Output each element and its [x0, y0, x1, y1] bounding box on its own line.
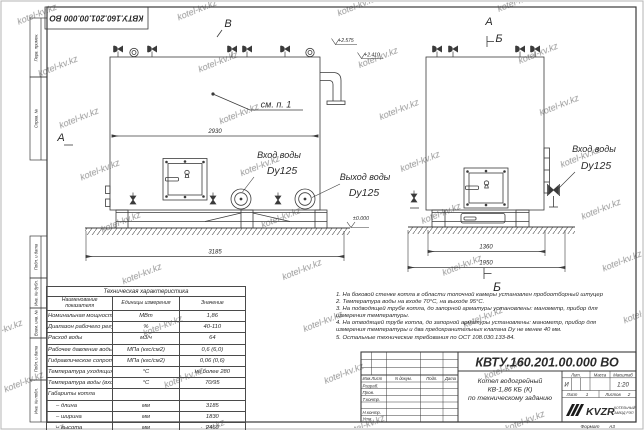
note-item: 4. На отводящей трубе котла, до запорной… — [336, 320, 626, 334]
cell-unit: °С — [113, 378, 179, 389]
tech-table: Техническая характеристика Наименование … — [46, 286, 246, 430]
product-title-line: по техническому заданию — [468, 394, 552, 402]
cell-value: 0,06 (0,6) — [179, 355, 245, 366]
cell-unit: мм — [113, 400, 179, 411]
cell-unit: МПа (кгс/см2) — [113, 355, 179, 366]
callout-dn: Dy125 — [267, 165, 298, 177]
docnum-flipped-text: КВТУ.160.201.00.000 ВО — [49, 14, 144, 23]
cell-name: Температура уходящих газов — [47, 367, 113, 378]
margin-label: Инв. № дубл. — [34, 280, 39, 306]
rev-row-label: Разраб. — [363, 384, 379, 389]
margin-label: Перв. примен. — [34, 34, 39, 62]
cell-value: 1830 — [179, 411, 245, 422]
dimension-value: 1950 — [479, 261, 493, 267]
company-name-line: ЗАВОД РЭП — [614, 411, 634, 415]
rev-header: Изм.Лист — [363, 376, 383, 381]
technical-notes: 1. На боковой стенке котла в области топ… — [336, 292, 626, 342]
mass-header: Масса — [594, 372, 607, 377]
note-item: 5. Остальные технические требования по О… — [336, 335, 626, 342]
rev-row-label: Утв. — [363, 417, 373, 422]
cell-unit: м3/ч — [113, 333, 179, 344]
product-title-line: Котел водогрейный — [478, 377, 543, 385]
cell-name: Диапазон рабочего регулирования — [47, 322, 113, 333]
sheet-label: Лист — [566, 392, 578, 397]
cell-unit: мм — [113, 423, 179, 430]
sheet-value: 1 — [586, 392, 589, 397]
col-header-value: Значение — [179, 297, 245, 311]
table-title: Техническая характеристика — [47, 287, 246, 297]
cell-name: – длина — [47, 400, 113, 411]
cell-unit: % — [113, 322, 179, 333]
section-label-b: Б — [495, 33, 502, 45]
cell-value — [179, 389, 245, 400]
cell-value: 64 — [179, 333, 245, 344]
section-label-a: А — [56, 132, 64, 144]
cell-value: 3185 — [179, 400, 245, 411]
rev-row-label: Н.контр. — [363, 410, 382, 415]
margin-label: Справ. № — [34, 109, 39, 128]
logo-text: KVZR — [586, 406, 615, 418]
cell-name: Номинальная мощность — [47, 311, 113, 322]
note-item: 3. На подводящей трубе котла, до запорно… — [336, 306, 626, 320]
format-label: Формат — [580, 424, 599, 430]
table-row: – ширинамм1830 — [47, 411, 246, 422]
lit-header: Лит. — [570, 372, 581, 377]
table-title-row: Техническая характеристика — [47, 287, 246, 297]
lit-value: И — [564, 383, 569, 389]
margin-label: Инв. № подл. — [34, 388, 39, 414]
table-row: Температура уходящих газов°Сне более 280 — [47, 367, 246, 378]
cell-unit: МВт — [113, 311, 179, 322]
dimension-value: 3185 — [208, 250, 222, 256]
col-header-unit: Единицы измерения — [113, 297, 179, 311]
callout-water-inlet: Вход воды — [572, 144, 616, 154]
cell-unit: °С — [113, 367, 179, 378]
rev-row-label: Т.контр. — [363, 397, 381, 402]
sheets-value: 2 — [627, 392, 631, 397]
callout-water-outlet: Выход воды — [340, 172, 391, 182]
cell-name: Температура воды (вход/выход) — [47, 378, 113, 389]
callout-dn: Dy125 — [349, 187, 380, 199]
rev-row-label: Пров. — [363, 390, 375, 395]
table-row: Расход водым3/ч64 — [47, 333, 246, 344]
scale-header: Масштаб — [613, 372, 633, 377]
table-row: Температура воды (вход/выход)°С70/95 — [47, 378, 246, 389]
cell-name: Гидравлическое сопротивление котла — [47, 355, 113, 366]
table-row: Диапазон рабочего регулирования%40-110 — [47, 322, 246, 333]
format-value: А3 — [608, 424, 615, 430]
sheets-label: Листов — [604, 392, 621, 397]
table-row: – длинамм3185 — [47, 400, 246, 411]
tech-table-container: Техническая характеристика Наименование … — [46, 286, 246, 430]
margin-label: Подп. и дата — [34, 243, 39, 270]
rev-header: Подп. — [426, 376, 437, 381]
elevation-value: +2.575 — [338, 38, 354, 44]
table-row: Габариты котла — [47, 389, 246, 400]
cell-value: не более 280 — [179, 367, 245, 378]
dimension-value: 1360 — [479, 245, 493, 251]
cell-name: – высота — [47, 423, 113, 430]
table-row: – высотамм2460 — [47, 423, 246, 430]
view-label-b: В — [224, 18, 231, 30]
cell-value: 0,6 (6,0) — [179, 344, 245, 355]
col-header-name: Наименование показателя — [47, 297, 113, 311]
scale-value: 1:20 — [617, 383, 629, 389]
cell-value: 2460 — [179, 423, 245, 430]
product-title-line: КВ-1,86 КБ (К) — [488, 387, 533, 394]
cell-unit — [113, 389, 179, 400]
table-header-row: Наименование показателя Единицы измерени… — [47, 297, 246, 311]
cell-value: 1,86 — [179, 311, 245, 322]
cell-name: Рабочее давление воды — [47, 344, 113, 355]
margin-label: Подп. и дата — [34, 345, 39, 372]
callout-water-inlet: Вход воды — [257, 150, 301, 160]
margin-label: Взам. инв. № — [34, 310, 39, 336]
cell-value: 70/95 — [179, 378, 245, 389]
table-row: Рабочее давление водыМПа (кгс/см2)0,6 (6… — [47, 344, 246, 355]
dimension-value: 2930 — [207, 129, 222, 135]
drawing-sheet: kotel-kv.kz КВТУ.160.201.00.000 ВО Перв.… — [0, 0, 644, 430]
company-name-line: КОТЕЛЬНЫЙ — [614, 406, 636, 410]
table-row: Гидравлическое сопротивление котлаМПа (к… — [47, 355, 246, 366]
cell-unit: МПа (кгс/см2) — [113, 344, 179, 355]
elevation-value: +2.410 — [364, 53, 380, 59]
doc-number: КВТУ.160.201.00.000 ВО — [475, 356, 619, 370]
table-row: Номинальная мощностьМВт1,86 — [47, 311, 246, 322]
rev-header: Дата — [444, 376, 457, 381]
ground-line — [408, 227, 575, 234]
cell-name: – ширина — [47, 411, 113, 422]
cell-unit: мм — [113, 411, 179, 422]
rev-header: N докум. — [395, 376, 412, 381]
see-item-text: см. п. 1 — [261, 100, 292, 110]
cell-value: 40-110 — [179, 322, 245, 333]
callout-dn: Dy125 — [581, 160, 612, 172]
view-label-a: А — [484, 16, 492, 28]
cell-name: Габариты котла — [47, 389, 113, 400]
note-item: 1. На боковой стенке котла в области топ… — [336, 292, 626, 299]
cell-name: Расход воды — [47, 333, 113, 344]
ground-line — [85, 228, 350, 235]
elevation-value: ±0.000 — [353, 216, 369, 222]
